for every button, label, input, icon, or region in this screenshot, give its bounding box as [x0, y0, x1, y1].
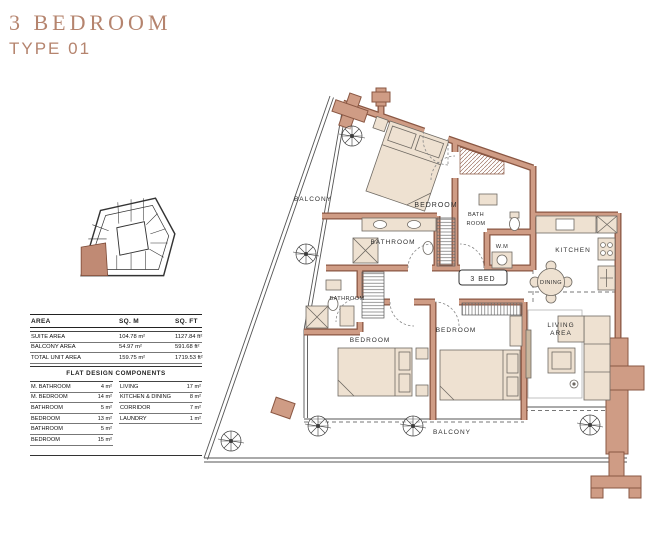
- cross-column: [372, 88, 390, 106]
- label-bedroom-bl: BEDROOM: [350, 337, 391, 344]
- bed: [338, 348, 428, 396]
- plant-icon: [218, 431, 244, 451]
- label-wm: W.M: [496, 244, 508, 250]
- label-kitchen: KITCHEN: [555, 247, 591, 254]
- badge-label: 3 BED: [470, 276, 495, 283]
- label-bedroom-master: BEDROOM: [414, 202, 457, 209]
- label-balcony-left: BALCONY: [294, 196, 332, 203]
- plant-icon: [577, 415, 603, 435]
- dresser: [510, 316, 522, 346]
- cabinet: [340, 306, 354, 326]
- label-balcony-bottom: BALCONY: [433, 429, 471, 436]
- unit-badge: 3 BED: [459, 270, 507, 285]
- floorplan-page: 3 BEDROOM TYPE 01 AREA SQ. M SQ. FT SUIT…: [0, 0, 660, 546]
- label-bathroom-top-2: ROOM: [466, 221, 485, 227]
- label-living-2: AREA: [550, 330, 572, 337]
- bed: [440, 350, 520, 400]
- label-bedroom-bm: BEDROOM: [436, 327, 477, 334]
- tv-unit: [526, 330, 531, 378]
- floor-plan: 3 BED BALCONY BEDROOM BATH ROOM W.M KITC…: [0, 0, 660, 546]
- washing-machine-icon: [492, 252, 512, 268]
- plant-icon: [293, 244, 319, 264]
- label-dining: DINING: [540, 280, 562, 286]
- column: [271, 397, 295, 419]
- label-bathroom-2: BATHROOM: [329, 296, 364, 302]
- label-bathroom-1: BATHROOM: [370, 239, 415, 246]
- label-living-1: LIVING: [547, 322, 574, 329]
- wardrobe: [437, 218, 455, 266]
- bed: [353, 116, 449, 211]
- label-bathroom-top-1: BATH: [468, 212, 484, 218]
- wardrobe: [462, 303, 522, 315]
- wardrobe: [362, 272, 384, 318]
